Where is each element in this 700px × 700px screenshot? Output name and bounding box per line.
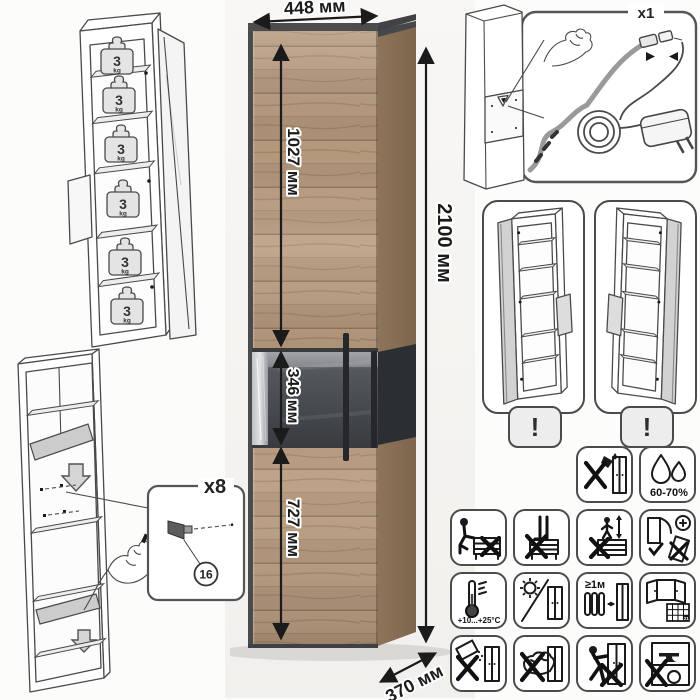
no-overloading-icon <box>639 635 696 692</box>
warning-exclamation: ! <box>643 412 652 443</box>
svg-text:kg: kg <box>119 211 127 218</box>
no-pushing-icon <box>576 635 633 692</box>
ventilation-calendar-icon: 21 <box>639 572 696 629</box>
door-option-right-panel <box>594 200 697 414</box>
no-axe-impact-icon <box>576 446 633 503</box>
door-option-left-drawing <box>484 202 583 412</box>
upper-door-label: 1027 мм <box>284 128 303 196</box>
grid-spacer <box>450 446 507 503</box>
product-photo: 448 мм 1027 мм 346 мм 727 мм 2100 мм 370… <box>230 0 470 700</box>
svg-text:kg: kg <box>121 269 129 276</box>
niche-side <box>378 344 416 445</box>
no-direct-sunlight-icon <box>513 572 570 629</box>
door-handle <box>343 333 349 461</box>
warning-badge: ! <box>620 406 674 448</box>
led-qty-label: x1 <box>638 5 655 22</box>
niche-flap <box>556 294 572 336</box>
lower-door-label: 727 мм <box>284 499 303 557</box>
no-abrasives-icon <box>450 635 507 692</box>
part-number: 16 <box>199 568 213 582</box>
weight-unit: kg <box>113 68 121 75</box>
led-kit-diagram: x1 <box>452 0 700 195</box>
depth-label: 370 мм <box>382 661 446 700</box>
niche-label: 346 мм <box>284 369 301 424</box>
height-label: 2100 мм <box>433 203 455 283</box>
no-sitting-icon <box>450 509 507 566</box>
door-option-right-drawing <box>596 202 695 412</box>
humidity-label: 60-70% <box>650 487 688 499</box>
niche-flap <box>607 294 623 336</box>
instruction-sheet: 3 kg 3kg 3kg 3kg 3kg 3kg <box>0 0 700 700</box>
heater-distance-icon: ≥1м <box>576 572 633 629</box>
width-label: 448 мм <box>283 0 346 19</box>
svg-text:kg: kg <box>117 156 125 163</box>
middle-flap <box>68 175 92 244</box>
svg-text:kg: kg <box>123 318 131 325</box>
temperature-label: +10...+25°C <box>457 616 500 625</box>
hardware-callout-panel <box>148 486 244 600</box>
hardware-qty-label: x8 <box>204 476 226 498</box>
warning-badge: ! <box>508 406 562 448</box>
no-wet-cloth-icon <box>513 635 570 692</box>
heater-distance-label: ≥1м <box>584 579 604 591</box>
humidity-icon: 60-70% <box>639 446 696 503</box>
temperature-range-icon: +10...+25°C <box>450 572 507 629</box>
door-handle <box>371 351 377 448</box>
secure-doors-icon <box>639 509 696 566</box>
shelf-load-diagram: 3 kg 3kg 3kg 3kg 3kg 3kg <box>40 5 210 350</box>
calendar-day: 21 <box>683 616 689 621</box>
svg-text:kg: kg <box>115 107 123 114</box>
top-frame <box>248 23 378 31</box>
care-icons-grid: 60-70% <box>450 446 696 692</box>
no-climbing-icon <box>576 509 633 566</box>
door-option-left-panel <box>482 200 585 414</box>
assembly-diagram: x8 16 <box>0 348 260 700</box>
grid-spacer <box>513 446 570 503</box>
no-standing-icon <box>513 509 570 566</box>
cabinet-side-face <box>378 21 416 646</box>
warning-exclamation: ! <box>531 412 540 443</box>
